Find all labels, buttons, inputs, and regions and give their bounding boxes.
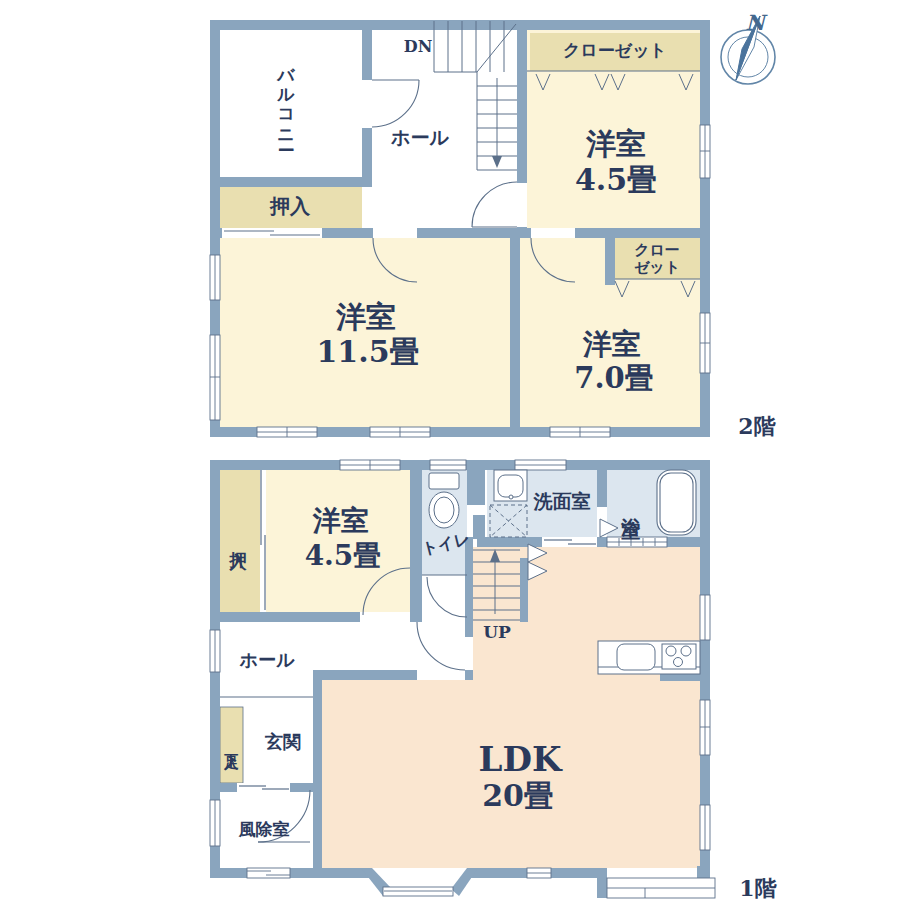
windbreak-room-label: 風除室 [239,820,290,839]
room-45-1f-name: 洋室 [313,505,369,536]
ldk-size: 20畳 [482,779,554,813]
kitchen-counter [598,641,700,674]
bay-window [383,887,453,896]
porch [607,878,715,898]
closet-small-line1: クロー [634,242,680,259]
stairs-dn-label: DN [404,38,433,56]
floor-2-label: 2階 [738,414,775,439]
stairs-down-arrowhead [492,156,502,168]
room-45-2f-name: 洋室 [586,127,646,161]
toilet-fixture [429,473,459,528]
shoe-cabinet-label: 下足入 [223,743,239,746]
entrance-label: 玄関 [265,732,301,752]
balcony-label: バルコニー [276,55,295,142]
washroom-label: 洗面室 [534,491,591,512]
room-45-1f-size: 4.5畳 [305,540,382,571]
floor-1-label: 1階 [739,876,776,901]
hall-1f-label: ホール [240,650,295,670]
closet-small-label: クロー ゼット [634,242,680,276]
room-45-2f-size: 4.5畳 [575,163,657,197]
room-70-size: 7.0畳 [574,362,653,394]
bathroom-label: 浴室 [620,503,641,507]
stairs-up-label: UP [483,623,511,642]
ldk-name: LDK [479,740,562,778]
room-115-name: 洋室 [336,300,396,334]
floor-plan-drawing [0,0,920,920]
bathtub-fixture [657,470,696,535]
closet-2f-label: クローゼット [563,41,667,60]
compass-north-label: N [745,11,764,35]
floor-plan: バルコニー ホール DN クローゼット 洋室 4.5畳 押入 洋室 11.5畳 … [0,0,920,920]
room-70-name: 洋室 [583,328,641,360]
hall-2f-label: ホール [391,127,449,148]
oshiire-2f-label: 押入 [270,195,310,217]
closet-small-line2: ゼット [634,259,680,276]
oshiire-1f-label: 押入 [228,537,247,541]
room-115-size: 11.5畳 [316,335,419,369]
washbasin-fixture [494,470,527,501]
